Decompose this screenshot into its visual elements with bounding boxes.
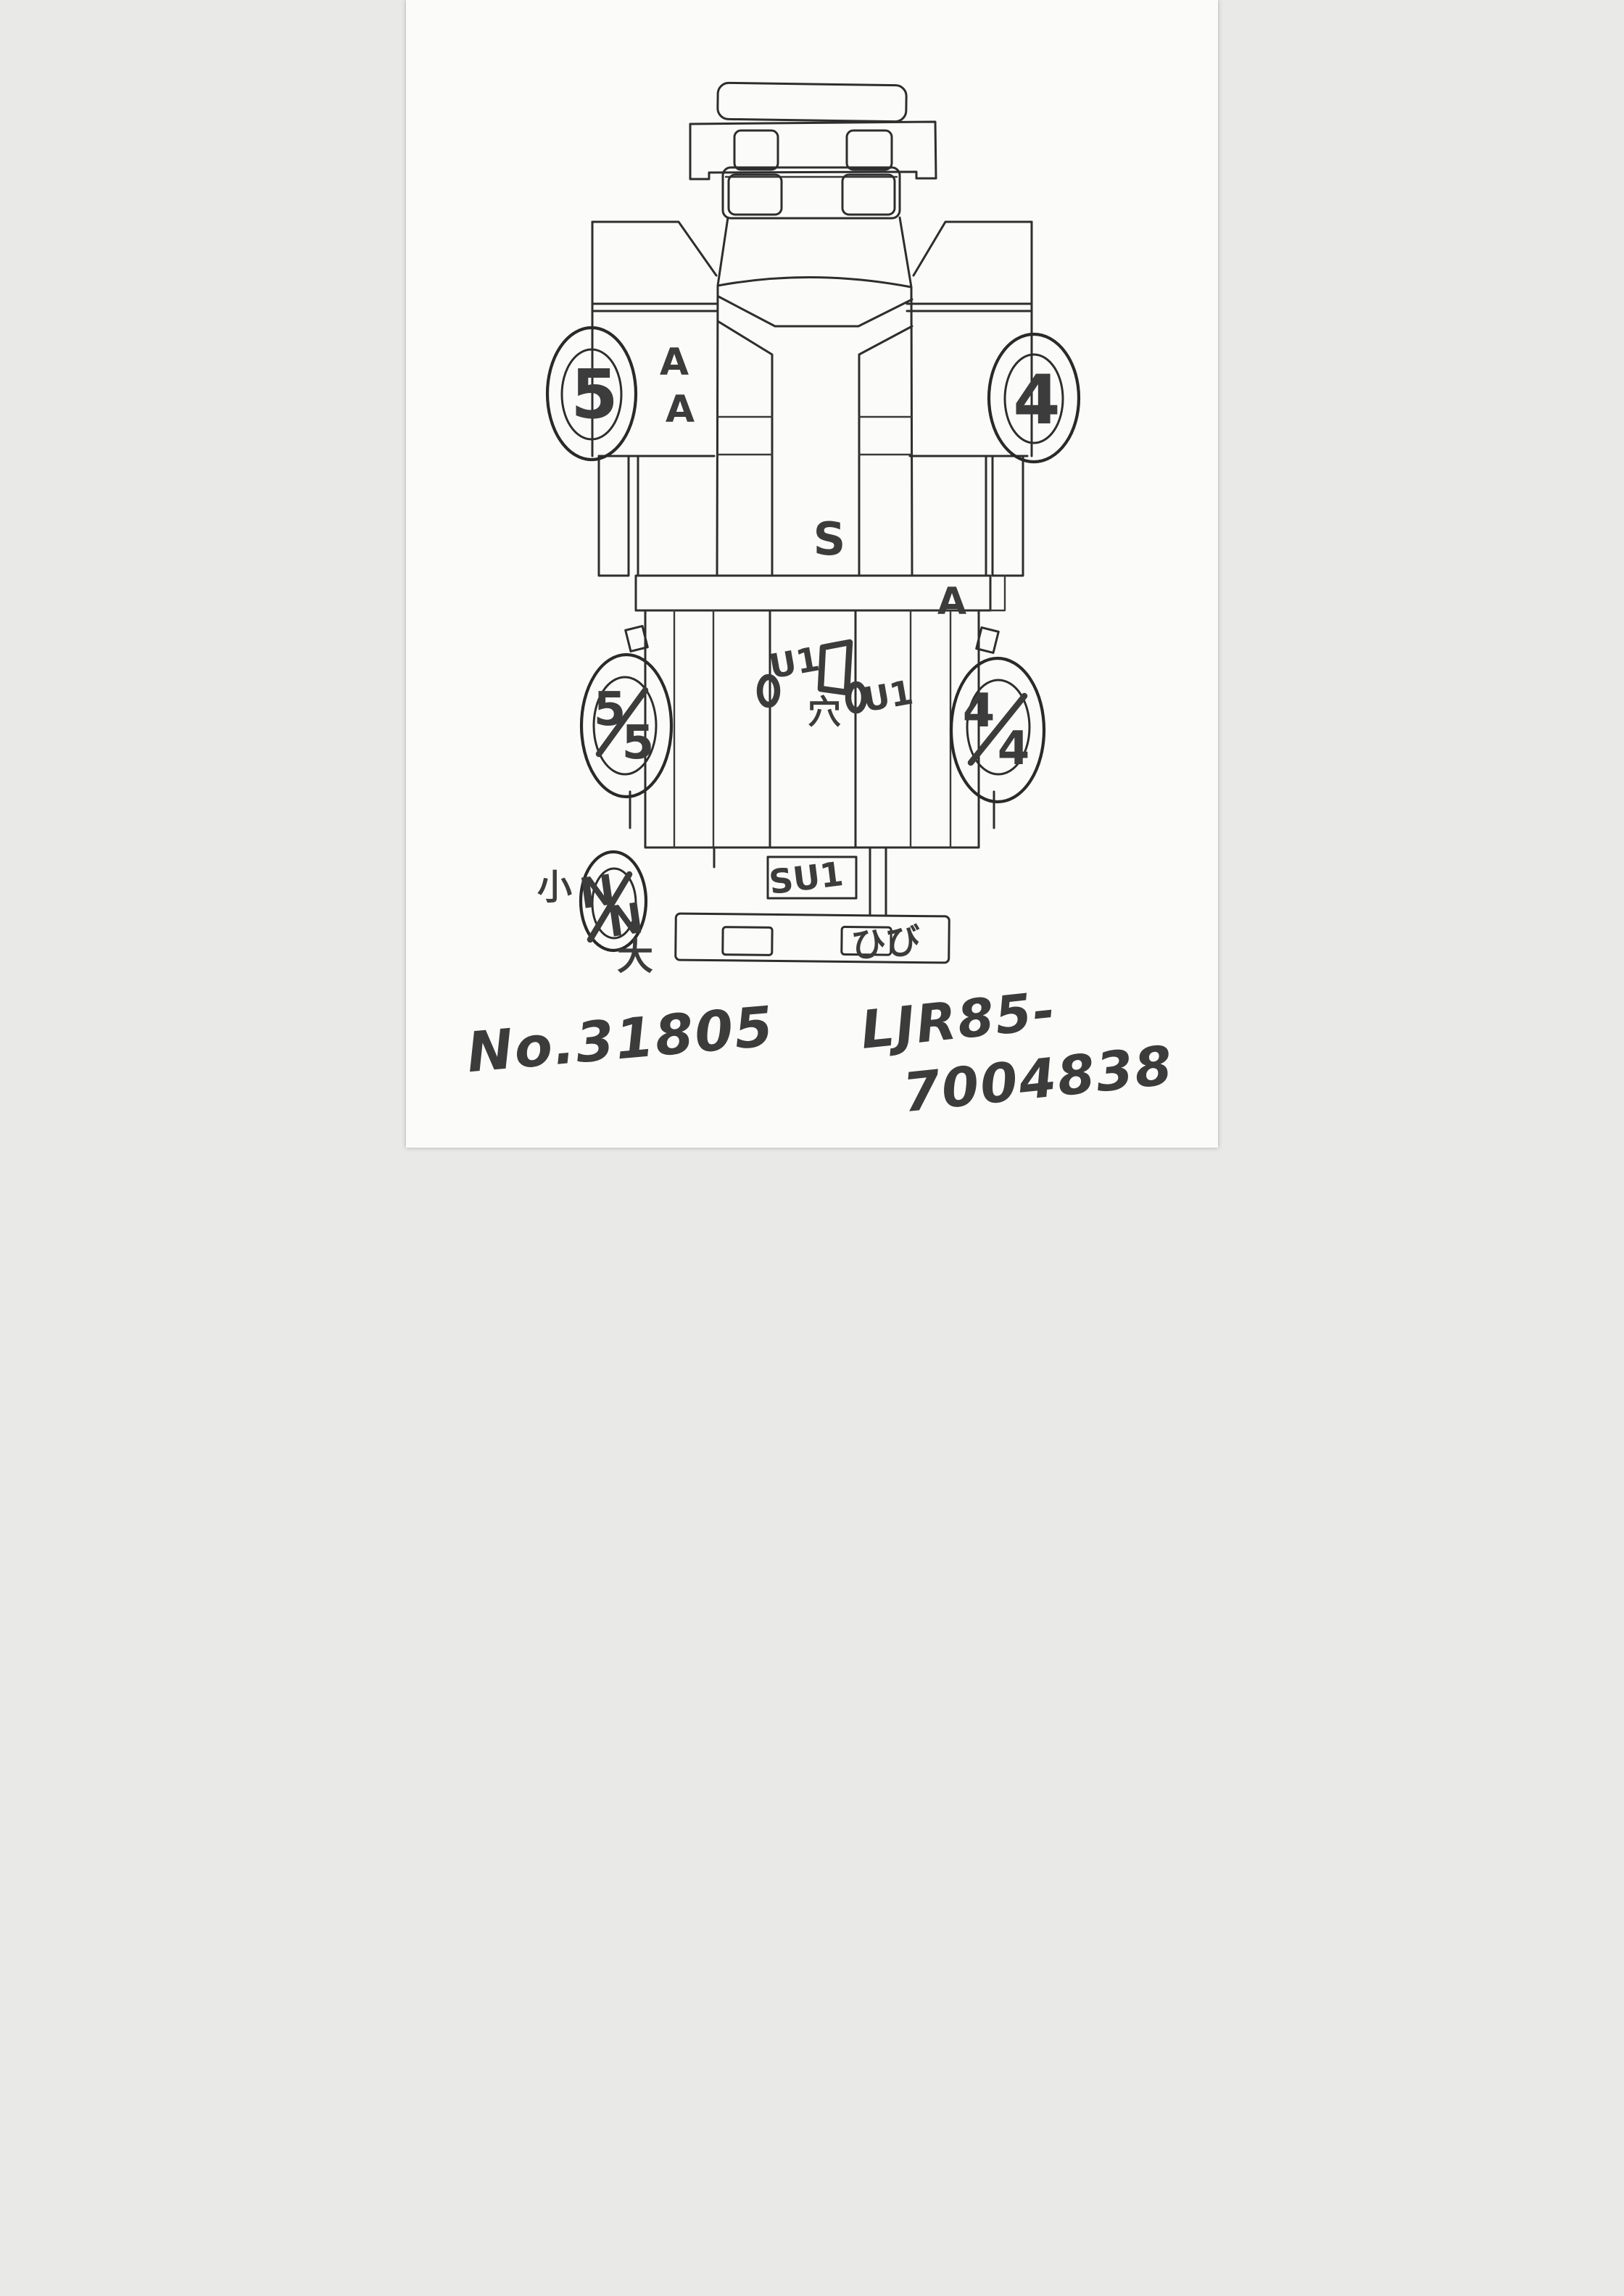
front-left-wheel-label: 5 bbox=[571, 355, 618, 434]
neck-rail-right bbox=[859, 326, 912, 576]
crossmember-mark-a: A bbox=[937, 580, 966, 623]
bumper-cutout-left bbox=[723, 927, 772, 956]
hole-symbol bbox=[821, 642, 850, 692]
sheet-number: No.31805 bbox=[464, 994, 776, 1085]
vehicle-code-line1: LJR85- bbox=[858, 979, 1058, 1061]
column-edge-right bbox=[900, 217, 912, 576]
body-sides-group bbox=[592, 222, 1032, 576]
wheel-arch-lines-lower bbox=[630, 792, 994, 828]
bumper-group: ひび bbox=[676, 913, 950, 967]
footer-group: No.31805 LJR85- 7004838 bbox=[464, 979, 1176, 1124]
rear-panel-label: SU1 bbox=[767, 854, 845, 902]
crack-label: ひび bbox=[850, 920, 922, 966]
rear-right-wheel-label-top: 4 bbox=[963, 684, 995, 738]
cab-mount-right bbox=[859, 417, 912, 455]
rocker-strip-left bbox=[599, 456, 629, 576]
windshield-pane-right bbox=[842, 175, 895, 215]
scanned-sheet: SU1 ひび 5 4 5 5 4 4 N N 小 大 bbox=[406, 0, 1218, 1148]
rear-left-wheel: 5 5 bbox=[581, 655, 671, 797]
door-mark-a1: A bbox=[660, 341, 689, 384]
cab-roof-group bbox=[690, 83, 936, 218]
door-seam-right bbox=[907, 304, 1032, 311]
truck-damage-diagram: SU1 ひび 5 4 5 5 4 4 N N 小 大 bbox=[406, 0, 1218, 1148]
damage-marks-group: A A S A U1 穴 U1 bbox=[660, 341, 966, 732]
spare-wheel: N N 小 大 bbox=[537, 852, 653, 978]
cab-mark-s: S bbox=[813, 513, 846, 565]
hole-label: 穴 bbox=[808, 692, 841, 732]
door-mark-a2: A bbox=[666, 388, 695, 431]
cab-vent-left bbox=[734, 130, 778, 170]
cowl-arc bbox=[718, 277, 911, 287]
column-edge-left bbox=[717, 217, 728, 576]
front-right-wheel-label: 4 bbox=[1013, 361, 1060, 440]
rear-right-wheel-label-bottom: 4 bbox=[998, 722, 1030, 776]
cab-vent-right bbox=[847, 130, 892, 170]
cab-mount-left bbox=[717, 417, 772, 455]
windshield-pane-left bbox=[729, 175, 782, 215]
roof-panel bbox=[718, 83, 907, 122]
fender-right bbox=[913, 222, 1032, 275]
crossmember-end-step bbox=[990, 576, 1005, 610]
spare-note-large: 大 bbox=[617, 936, 653, 978]
rear-panel-group: SU1 bbox=[767, 854, 856, 902]
front-right-wheel: 4 bbox=[989, 334, 1079, 462]
spare-note-small: 小 bbox=[537, 867, 572, 908]
rocker-strip-right bbox=[993, 456, 1023, 576]
fender-left bbox=[592, 222, 716, 275]
rear-left-wheel-label-bottom: 5 bbox=[622, 716, 655, 770]
rear-right-wheel: 4 4 bbox=[951, 658, 1044, 802]
frame-mark-u1-left: U1 bbox=[766, 639, 823, 686]
frame-mark-u1-right: U1 bbox=[860, 672, 916, 719]
hood-rear-edge bbox=[718, 297, 912, 326]
door-seam-left bbox=[592, 304, 716, 311]
neck-rail-left bbox=[718, 321, 772, 576]
